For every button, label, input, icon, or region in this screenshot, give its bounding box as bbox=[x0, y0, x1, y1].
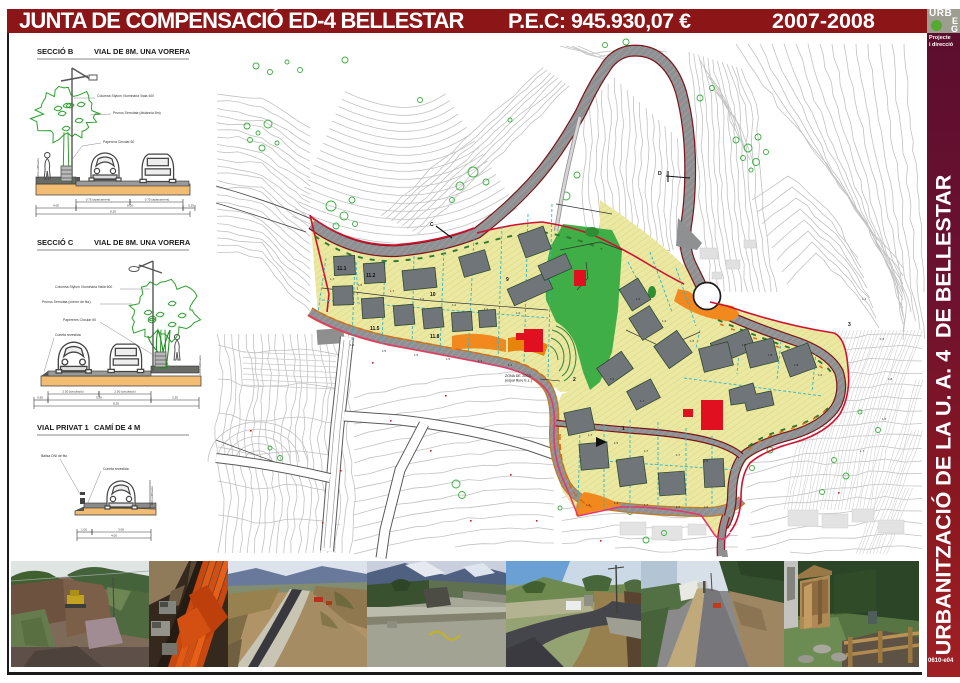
svg-text:8.25: 8.25 bbox=[113, 402, 119, 406]
svg-text:Cuneta revestida: Cuneta revestida bbox=[103, 467, 129, 471]
svg-text:1.3: 1.3 bbox=[586, 503, 591, 507]
svg-text:1.3: 1.3 bbox=[478, 359, 483, 363]
svg-text:Paperera Circular 60: Paperera Circular 60 bbox=[103, 140, 134, 144]
svg-text:1.5: 1.5 bbox=[446, 357, 451, 361]
svg-text:11.8: 11.8 bbox=[430, 334, 440, 340]
svg-text:1.0: 1.0 bbox=[420, 297, 425, 301]
svg-text:Papereres Circular 60: Papereres Circular 60 bbox=[63, 318, 96, 322]
svg-text:1.0: 1.0 bbox=[610, 377, 615, 381]
svg-text:VIAL DE 8M. UNA VORERA: VIAL DE 8M. UNA VORERA bbox=[94, 47, 191, 56]
svg-text:Columna Stylum i lluminària Ha: Columna Stylum i lluminària Halla 600 bbox=[55, 285, 112, 289]
svg-text:0.75 (aparcament): 0.75 (aparcament) bbox=[86, 198, 111, 202]
svg-text:11.2: 11.2 bbox=[366, 273, 376, 279]
svg-text:11.5: 11.5 bbox=[370, 326, 380, 332]
svg-text:1.6: 1.6 bbox=[690, 339, 695, 343]
svg-text:VIAL PRIVAT 1: VIAL PRIVAT 1 bbox=[37, 423, 89, 432]
svg-text:1.3: 1.3 bbox=[350, 343, 355, 347]
svg-text:Límit edificació: Límit edificació bbox=[36, 158, 40, 178]
svg-text:0.25: 0.25 bbox=[188, 204, 194, 208]
svg-text:Prunus Serrulata (distància 8m: Prunus Serrulata (distància 8m) bbox=[113, 111, 161, 115]
svg-text:1.7: 1.7 bbox=[588, 433, 593, 437]
svg-text:1.6: 1.6 bbox=[882, 417, 887, 421]
svg-text:1.6: 1.6 bbox=[704, 505, 709, 509]
svg-text:Cuneta revestida: Cuneta revestida bbox=[55, 333, 81, 337]
svg-text:1.7: 1.7 bbox=[644, 449, 649, 453]
svg-text:9: 9 bbox=[506, 277, 509, 283]
svg-text:1.5: 1.5 bbox=[880, 337, 885, 341]
svg-text:1.8: 1.8 bbox=[794, 363, 799, 367]
svg-text:3.00: 3.00 bbox=[118, 528, 124, 532]
svg-text:8.00: 8.00 bbox=[127, 204, 133, 208]
svg-text:1.5: 1.5 bbox=[676, 505, 681, 509]
svg-text:Límit edificació: Límit edificació bbox=[198, 355, 202, 375]
svg-text:1.5: 1.5 bbox=[704, 459, 709, 463]
svg-text:1.7: 1.7 bbox=[676, 453, 681, 457]
svg-text:1.5: 1.5 bbox=[614, 441, 619, 445]
svg-text:CAMÍ DE 4 M: CAMÍ DE 4 M bbox=[94, 423, 140, 432]
svg-text:Prunus Serrulata (cirerer de f: Prunus Serrulata (cirerer de flor) bbox=[42, 300, 91, 304]
svg-text:2: 2 bbox=[573, 377, 576, 383]
svg-text:1.7: 1.7 bbox=[860, 449, 865, 453]
svg-text:1.8: 1.8 bbox=[742, 343, 747, 347]
svg-text:1.0: 1.0 bbox=[636, 297, 641, 301]
svg-text:1: 1 bbox=[622, 426, 625, 432]
svg-text:Balisa DNI de fito: Balisa DNI de fito bbox=[41, 454, 67, 458]
svg-text:1.5: 1.5 bbox=[358, 283, 363, 287]
svg-text:10: 10 bbox=[430, 292, 436, 298]
svg-text:0.75 (aparcament): 0.75 (aparcament) bbox=[145, 198, 170, 202]
svg-text:1.7: 1.7 bbox=[390, 289, 395, 293]
svg-text:D: D bbox=[658, 171, 662, 177]
svg-text:1.5: 1.5 bbox=[414, 353, 419, 357]
svg-text:2.50 (circulació): 2.50 (circulació) bbox=[114, 390, 135, 394]
svg-text:0.50: 0.50 bbox=[37, 396, 43, 400]
svg-text:1.8: 1.8 bbox=[768, 353, 773, 357]
svg-text:1.5: 1.5 bbox=[382, 349, 387, 353]
svg-text:1.7: 1.7 bbox=[644, 503, 649, 507]
svg-text:1.2: 1.2 bbox=[484, 307, 489, 311]
svg-text:1.00: 1.00 bbox=[81, 528, 87, 532]
svg-text:4.00: 4.00 bbox=[111, 534, 117, 538]
svg-text:1.1: 1.1 bbox=[508, 363, 513, 367]
svg-text:C: C bbox=[430, 222, 434, 228]
svg-text:1.2: 1.2 bbox=[452, 303, 457, 307]
svg-text:1.2: 1.2 bbox=[614, 501, 619, 505]
svg-text:1.7: 1.7 bbox=[330, 277, 335, 281]
svg-text:5.50: 5.50 bbox=[96, 396, 102, 400]
svg-text:SECCIÓ C: SECCIÓ C bbox=[37, 238, 74, 247]
svg-text:11.1: 11.1 bbox=[337, 266, 347, 272]
svg-text:SECCIÓ B: SECCIÓ B bbox=[37, 47, 74, 56]
svg-text:8.25: 8.25 bbox=[110, 210, 116, 214]
svg-text:2.50 (circulació): 2.50 (circulació) bbox=[62, 390, 83, 394]
svg-text:1.7: 1.7 bbox=[640, 399, 645, 403]
svg-text:4.00: 4.00 bbox=[53, 204, 59, 208]
svg-text:límit edificació: límit edificació bbox=[150, 486, 154, 505]
svg-text:2.25: 2.25 bbox=[172, 396, 178, 400]
svg-text:3: 3 bbox=[848, 322, 851, 328]
svg-text:1.2: 1.2 bbox=[516, 311, 521, 315]
svg-text:1.3: 1.3 bbox=[662, 319, 667, 323]
svg-text:Columna Stylum i lluminària Vi: Columna Stylum i lluminària Viala 400 bbox=[97, 94, 154, 98]
svg-text:(espai lliure E.L.): (espai lliure E.L.) bbox=[505, 379, 532, 383]
svg-text:1.6: 1.6 bbox=[818, 373, 823, 377]
svg-text:ZONA DE JOCS: ZONA DE JOCS bbox=[505, 374, 532, 378]
svg-text:1.1: 1.1 bbox=[862, 297, 867, 301]
svg-text:VIAL DE 8M. UNA VORERA: VIAL DE 8M. UNA VORERA bbox=[94, 238, 191, 247]
svg-text:1.8: 1.8 bbox=[888, 377, 893, 381]
